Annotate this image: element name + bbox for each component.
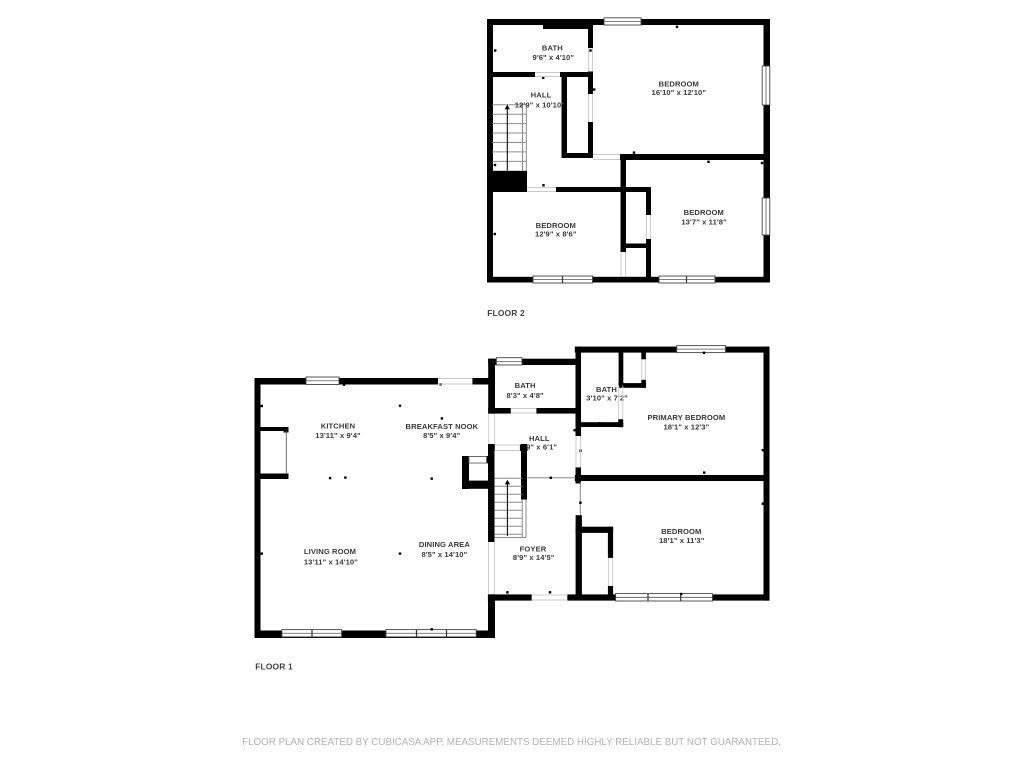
- svg-text:HALL: HALL: [531, 90, 552, 99]
- svg-text:FLOOR PLAN CREATED BY CUBICASA: FLOOR PLAN CREATED BY CUBICASA APP. MEAS…: [242, 737, 781, 748]
- svg-text:9" x 6'1": 9" x 6'1": [526, 442, 557, 451]
- svg-text:LIVING ROOM: LIVING ROOM: [304, 547, 356, 556]
- svg-text:13'11" x 9'4": 13'11" x 9'4": [315, 431, 361, 440]
- svg-text:BREAKFAST NOOK: BREAKFAST NOOK: [406, 422, 479, 431]
- svg-text:DINING AREA: DINING AREA: [419, 540, 470, 549]
- svg-text:13'7" x 11'8": 13'7" x 11'8": [681, 218, 727, 227]
- svg-text:PRIMARY BEDROOM: PRIMARY BEDROOM: [647, 413, 725, 422]
- svg-text:BEDROOM: BEDROOM: [659, 79, 699, 88]
- svg-text:13'11" x 14'10": 13'11" x 14'10": [304, 558, 358, 567]
- svg-text:FLOOR 2: FLOOR 2: [487, 308, 525, 318]
- svg-text:BATH: BATH: [542, 43, 563, 52]
- svg-text:8'3" x 4'8": 8'3" x 4'8": [506, 391, 544, 400]
- svg-text:KITCHEN: KITCHEN: [321, 422, 355, 431]
- svg-text:18'1" x 11'3": 18'1" x 11'3": [659, 536, 705, 545]
- svg-text:8'5" x 14'10": 8'5" x 14'10": [421, 550, 467, 559]
- svg-text:18'1" x 12'3": 18'1" x 12'3": [663, 422, 709, 431]
- svg-text:12'9" x 8'6": 12'9" x 8'6": [535, 230, 577, 239]
- svg-text:FLOOR 1: FLOOR 1: [255, 662, 293, 672]
- svg-text:3'10" x 7'2": 3'10" x 7'2": [586, 393, 628, 402]
- svg-text:16'10" x 12'10": 16'10" x 12'10": [652, 88, 707, 97]
- svg-text:8'5" x 9'4": 8'5" x 9'4": [423, 431, 461, 440]
- svg-text:9'6" x 4'10": 9'6" x 4'10": [533, 53, 575, 62]
- svg-text:12'9" x 10'10": 12'9" x 10'10": [515, 100, 566, 109]
- svg-text:8'9" x 14'5": 8'9" x 14'5": [513, 553, 555, 562]
- svg-text:BATH: BATH: [515, 381, 536, 390]
- svg-text:BEDROOM: BEDROOM: [661, 527, 701, 536]
- svg-text:BEDROOM: BEDROOM: [684, 208, 724, 217]
